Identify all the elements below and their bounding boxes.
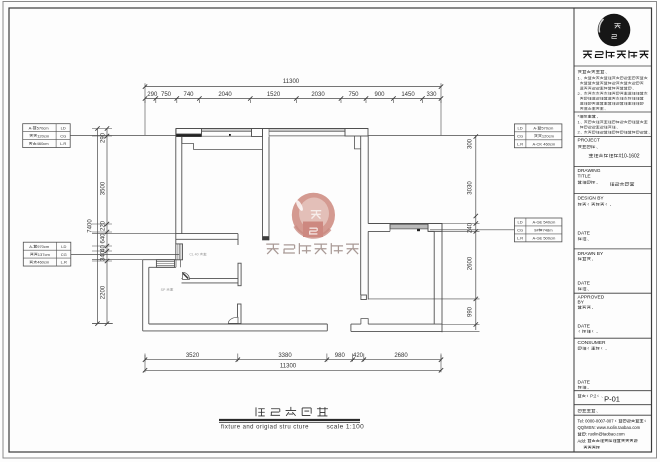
svg-text:L.R: L.R	[60, 141, 66, 146]
svg-text:290: 290	[147, 92, 158, 98]
svg-text:LD: LD	[518, 220, 523, 225]
svg-text:460cm: 460cm	[37, 141, 50, 146]
svg-text:750: 750	[348, 92, 359, 98]
svg-text:A-: A-	[29, 125, 34, 130]
svg-text:DESIGN BY: DESIGN BY	[578, 196, 605, 202]
svg-text:740: 740	[183, 92, 194, 98]
svg-text:CG: CG	[517, 133, 523, 138]
svg-text:7400: 7400	[88, 219, 94, 233]
svg-text:980: 980	[335, 353, 346, 359]
svg-text:DATE: DATE	[578, 324, 590, 330]
svg-text:A-GE 500cm: A-GE 500cm	[532, 236, 556, 241]
svg-text:3520: 3520	[186, 353, 200, 359]
svg-text:2680: 2680	[394, 353, 408, 359]
svg-text:fixture and origiad stru cture: fixture and origiad stru cture	[221, 425, 309, 431]
svg-text:PROJECT: PROJECT	[578, 138, 600, 144]
svg-text:TITLE: TITLE	[578, 174, 591, 180]
svg-text:340: 340	[101, 250, 107, 261]
svg-text:#10-1602: #10-1602	[618, 154, 639, 160]
svg-text:40: 40	[101, 245, 107, 252]
svg-text:L.R: L.R	[61, 260, 67, 265]
svg-text:240: 240	[467, 222, 473, 233]
svg-text:P:2: P:2	[590, 394, 597, 399]
svg-text:2030: 2030	[311, 92, 325, 98]
svg-text:3030: 3030	[467, 181, 473, 195]
svg-text:CG: CG	[60, 133, 66, 138]
svg-text:900: 900	[374, 92, 385, 98]
svg-text:3380: 3380	[278, 353, 292, 359]
svg-text:570cm: 570cm	[541, 126, 554, 131]
svg-text:L.R: L.R	[517, 236, 523, 241]
svg-text:: ruolin@taobao.com: : ruolin@taobao.com	[586, 432, 625, 437]
svg-text:990: 990	[467, 306, 473, 317]
svg-text:640: 640	[101, 233, 107, 244]
svg-text:11300: 11300	[283, 79, 300, 85]
svg-text:330: 330	[426, 92, 437, 98]
svg-text:748m: 748m	[543, 228, 554, 233]
svg-text:570cm: 570cm	[37, 125, 50, 130]
svg-text:CONSUMER: CONSUMER	[578, 340, 607, 346]
svg-text:LD: LD	[518, 126, 523, 131]
svg-text:DRAWN BY: DRAWN BY	[578, 251, 604, 257]
svg-text:DATE: DATE	[578, 281, 590, 287]
svg-text:BY: BY	[578, 300, 585, 306]
svg-text:290: 290	[101, 132, 107, 143]
svg-text:DRAWING: DRAWING	[578, 168, 601, 174]
svg-text:QQ/MSN: www.ruolin.taobao.com: QQ/MSN: www.ruolin.taobao.com	[578, 425, 641, 430]
svg-text:P-01: P-01	[604, 395, 620, 404]
svg-text:3500: 3500	[101, 181, 107, 195]
svg-text:2600: 2600	[467, 256, 473, 270]
svg-text:A-GE 540cm: A-GE 540cm	[532, 220, 556, 225]
svg-text:970cm: 970cm	[37, 244, 50, 249]
svg-text:750: 750	[161, 92, 172, 98]
svg-text:SP: SP	[161, 288, 166, 292]
svg-text:CG: CG	[517, 228, 523, 233]
svg-text:A-: A-	[533, 126, 538, 131]
svg-text:A-: A-	[29, 244, 34, 249]
svg-text:A-CK 460cm: A-CK 460cm	[533, 141, 556, 146]
svg-text:Tel: 0000-0007-007: Tel: 0000-0007-007	[578, 419, 615, 424]
svg-text:2040: 2040	[218, 92, 232, 98]
svg-text:137cm: 137cm	[38, 252, 51, 257]
svg-text:120cm: 120cm	[37, 133, 50, 138]
svg-text:CG: CG	[61, 252, 67, 257]
svg-text:LD: LD	[61, 125, 66, 130]
svg-text:2200: 2200	[101, 285, 107, 299]
svg-text:11300: 11300	[280, 363, 297, 369]
svg-text:DATE: DATE	[578, 380, 590, 386]
svg-text:220: 220	[101, 220, 107, 231]
svg-text:1450: 1450	[401, 92, 415, 98]
svg-text:300: 300	[467, 138, 473, 149]
svg-text:LD: LD	[61, 244, 66, 249]
svg-text:L.R: L.R	[517, 141, 523, 146]
svg-text:120cm: 120cm	[542, 133, 555, 138]
svg-text:DATE: DATE	[578, 231, 590, 237]
svg-text:Add:: Add:	[578, 438, 587, 443]
svg-text:CL 40: CL 40	[189, 253, 198, 257]
svg-text:420: 420	[353, 353, 364, 359]
svg-text:1520: 1520	[267, 92, 281, 98]
svg-text:scale 1:100: scale 1:100	[327, 424, 365, 431]
svg-text:460cm: 460cm	[37, 260, 50, 265]
svg-text:9#: 9#	[534, 228, 539, 233]
